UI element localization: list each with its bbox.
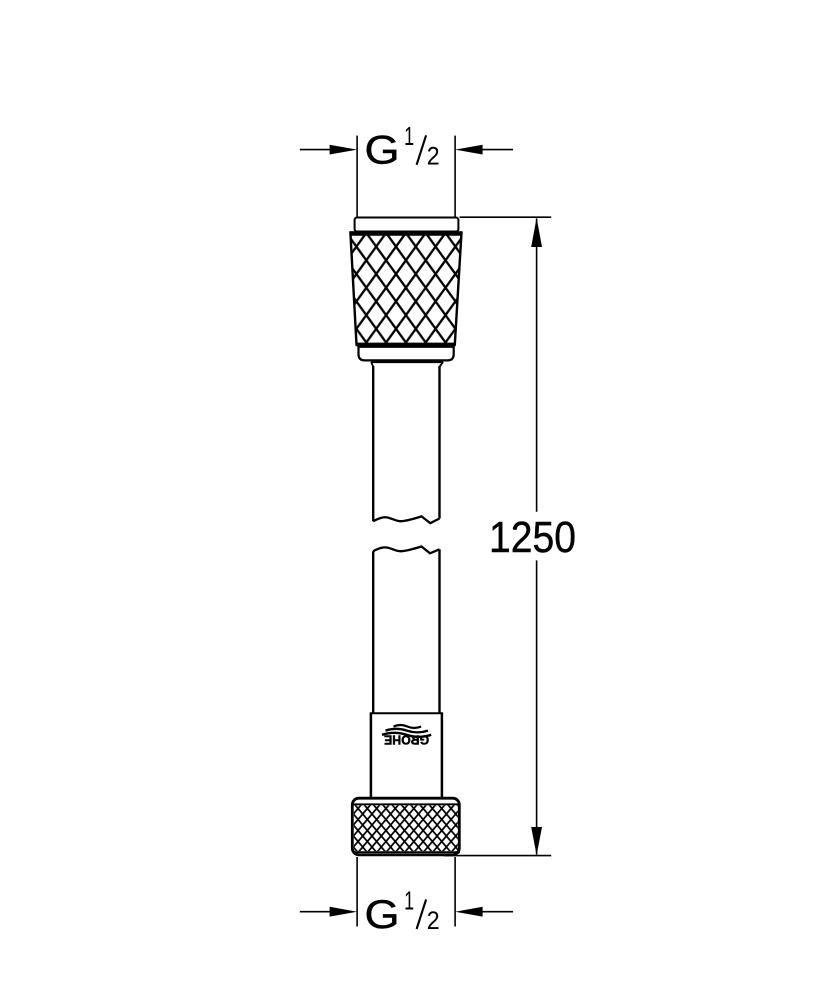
svg-text:G: G (365, 128, 400, 173)
svg-text:GROHE: GROHE (384, 733, 429, 748)
svg-text:2: 2 (427, 907, 440, 935)
svg-text:2: 2 (427, 143, 440, 171)
svg-text:G: G (365, 892, 400, 937)
svg-text:1: 1 (404, 123, 414, 151)
svg-text:1: 1 (404, 887, 414, 915)
svg-text:1250: 1250 (489, 514, 576, 562)
